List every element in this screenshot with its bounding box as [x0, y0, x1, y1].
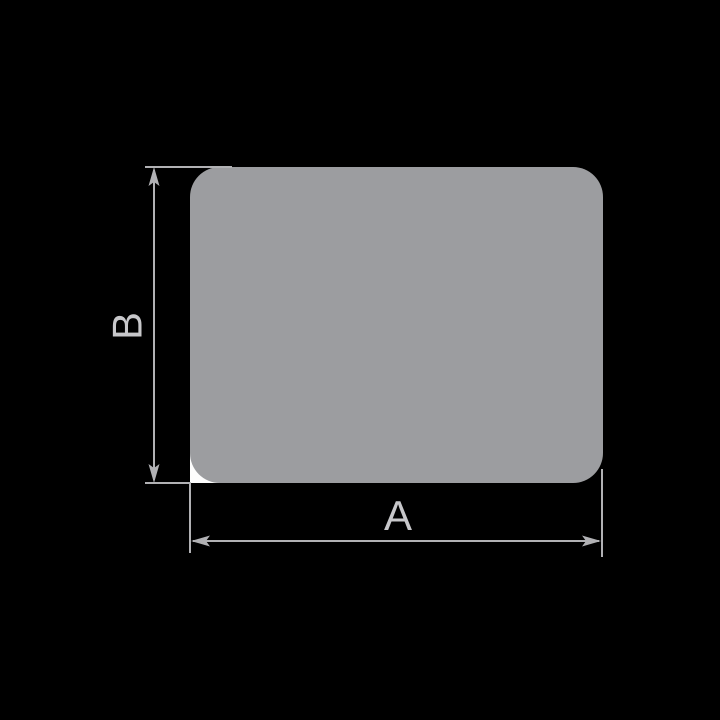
height-label: B: [104, 312, 151, 340]
profile-shape: [190, 167, 603, 483]
diagram-canvas: B A: [0, 0, 720, 720]
width-label: A: [384, 492, 412, 539]
profile-dimension-drawing: B A: [0, 0, 720, 720]
